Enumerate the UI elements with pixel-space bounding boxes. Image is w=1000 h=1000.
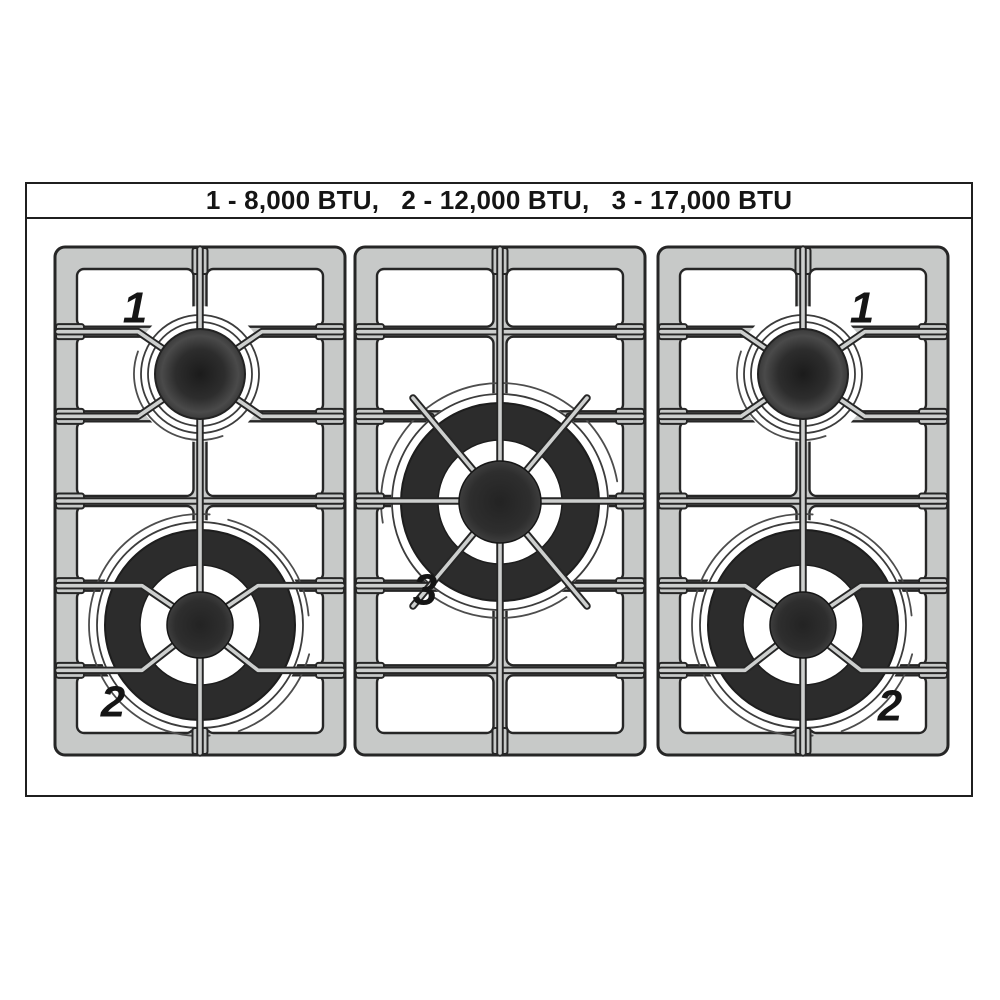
cooktop-diagram-page: 1 - 8,000 BTU, 2 - 12,000 BTU, 3 - 17,00… <box>0 0 1000 1000</box>
burner-label-1: 1 <box>123 284 147 333</box>
burner-3-cap <box>459 461 541 543</box>
burner-1-cap <box>155 329 245 419</box>
burner-2-cap <box>167 592 233 658</box>
grate-cell <box>507 675 624 733</box>
burner-label-1: 1 <box>850 284 874 333</box>
grate-left: 12 <box>55 247 345 755</box>
grate-center: 3 <box>355 247 645 755</box>
burner-label-2: 2 <box>100 678 126 727</box>
burner-1-cap <box>758 329 848 419</box>
cooktop-illustration: 12312 <box>0 0 1000 1000</box>
burner-2-cap <box>770 592 836 658</box>
burner-label-2: 2 <box>877 682 903 731</box>
grate-cell <box>507 269 624 327</box>
grate-cell <box>377 269 494 327</box>
grate-right: 12 <box>658 247 948 755</box>
grate-cell <box>377 675 494 733</box>
burner-label-3: 3 <box>413 566 437 615</box>
